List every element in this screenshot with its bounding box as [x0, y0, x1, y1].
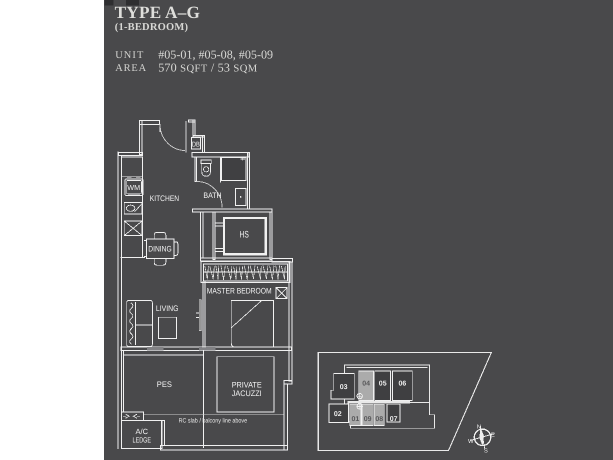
- svg-text:UNIT: UNIT: [115, 50, 144, 61]
- svg-text:08: 08: [375, 416, 383, 423]
- svg-text:09: 09: [364, 416, 372, 423]
- svg-text:BATH: BATH: [203, 191, 221, 200]
- svg-text:W: W: [468, 438, 474, 445]
- svg-text:E: E: [491, 432, 495, 439]
- svg-text:A/C: A/C: [136, 427, 149, 436]
- svg-text:(1-BEDROOM): (1-BEDROOM): [115, 22, 189, 33]
- svg-text:05: 05: [379, 381, 387, 388]
- svg-text:01: 01: [352, 416, 360, 423]
- svg-text:KITCHEN: KITCHEN: [150, 194, 179, 203]
- svg-text:03: 03: [340, 384, 348, 391]
- svg-text:DB: DB: [192, 141, 200, 148]
- svg-text:JACUZZI: JACUZZI: [232, 389, 262, 398]
- svg-text:570 SQFT / 53 SQM: 570 SQFT / 53 SQM: [158, 60, 258, 74]
- svg-text:HS: HS: [240, 229, 249, 240]
- svg-text:N: N: [477, 423, 481, 430]
- svg-text:06: 06: [399, 381, 407, 388]
- svg-text:S: S: [484, 448, 488, 455]
- svg-text:RC slab / balcony line above: RC slab / balcony line above: [179, 417, 248, 424]
- svg-text:MASTER BEDROOM: MASTER BEDROOM: [207, 286, 272, 295]
- svg-text:#05-01, #05-08, #05-09: #05-01, #05-08, #05-09: [158, 47, 273, 61]
- svg-text:02: 02: [334, 411, 342, 418]
- svg-text:PES: PES: [157, 380, 172, 389]
- svg-text:DINING: DINING: [148, 244, 171, 253]
- svg-text:TYPE A–G: TYPE A–G: [115, 3, 201, 22]
- svg-text:LEDGE: LEDGE: [133, 436, 152, 445]
- svg-text:04: 04: [362, 381, 370, 388]
- svg-text:LIVING: LIVING: [156, 304, 179, 313]
- svg-text:07: 07: [390, 416, 398, 423]
- svg-text:WM: WM: [127, 183, 140, 192]
- svg-text:AREA: AREA: [115, 63, 147, 74]
